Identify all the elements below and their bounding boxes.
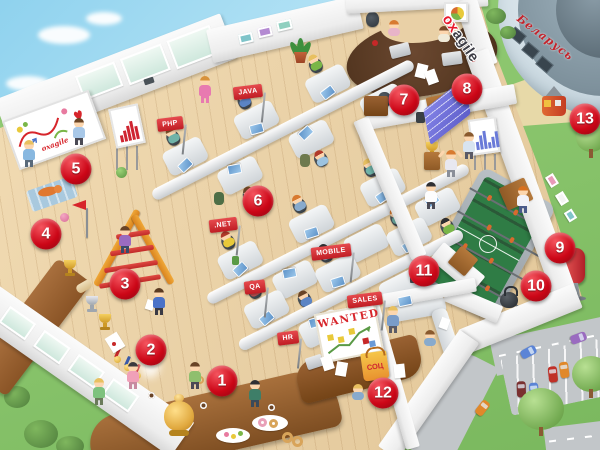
map-marker-10[interactable]: 10 [521, 271, 552, 302]
window [33, 330, 71, 365]
bush [500, 26, 516, 39]
tree-trunk [589, 389, 593, 398]
person [424, 182, 438, 209]
yarn-ball [116, 167, 127, 178]
certificate-seal [112, 342, 116, 346]
person [22, 140, 36, 167]
team-flag-dotnet: .NET [209, 219, 237, 232]
tea-cup [148, 392, 155, 399]
trophy-cup [86, 296, 98, 312]
candy [231, 434, 236, 439]
flipchart-legs [114, 146, 140, 170]
team-flag-mobile: MOBILE [311, 246, 351, 259]
team-flag-sales: SALES [347, 294, 382, 307]
cloud [38, 26, 90, 44]
team-flag-qa: QA [244, 281, 265, 294]
bush [24, 420, 58, 448]
flag-label: .NET [209, 217, 238, 233]
tree [518, 388, 564, 436]
picture-frame [555, 191, 569, 206]
pretzel [292, 436, 303, 447]
person [118, 226, 132, 253]
team-flag-hr: HR [278, 332, 299, 345]
samovar-base [169, 430, 189, 436]
picture-frame [257, 25, 273, 38]
tea-cup [268, 404, 275, 411]
car [559, 361, 570, 378]
tree-crown [572, 356, 600, 392]
trophy-cup [64, 260, 76, 276]
tea-cup [200, 402, 207, 409]
person [72, 118, 86, 145]
map-marker-6[interactable]: 6 [243, 186, 274, 217]
tree-crown [518, 388, 564, 430]
kiosk-sign [555, 100, 561, 106]
yarn-ball [60, 213, 69, 222]
samovar-body [164, 401, 194, 431]
team-flag-java: JAVA [233, 86, 262, 99]
backpack [300, 154, 310, 167]
cat [38, 185, 62, 197]
person [388, 20, 400, 36]
person [188, 362, 202, 389]
car [548, 366, 559, 383]
medal [114, 356, 121, 363]
flag-label: JAVA [233, 84, 264, 100]
samovar [162, 394, 196, 444]
person [424, 330, 436, 346]
flag-label: MOBILE [311, 243, 352, 261]
team-flag-php: PHP [157, 118, 183, 131]
person [386, 306, 400, 333]
flag-pole [86, 208, 88, 238]
kiosk-sign [544, 100, 551, 107]
picture-frame [276, 19, 293, 32]
office-chair [366, 12, 379, 27]
person [516, 186, 530, 213]
window [0, 306, 36, 341]
donut [258, 418, 267, 427]
person [126, 362, 140, 389]
resume [393, 363, 405, 378]
trophy-cup [99, 314, 111, 330]
kiosk [541, 86, 567, 118]
person [462, 132, 476, 159]
tree-trunk [539, 427, 543, 436]
cloud [86, 12, 122, 25]
bush [56, 436, 84, 450]
tree [572, 356, 600, 398]
small-plant [232, 256, 239, 265]
flag-label: SALES [347, 291, 384, 308]
candy [224, 432, 229, 437]
person [92, 378, 106, 405]
foosball-center-circle [476, 232, 500, 256]
map-marker-2[interactable]: 2 [136, 335, 167, 366]
map-marker-3[interactable]: 3 [110, 269, 141, 300]
map-marker-1[interactable]: 1 [207, 366, 238, 397]
person [248, 380, 262, 407]
picture-frame [238, 32, 254, 45]
apple [372, 40, 378, 46]
picture-frame [564, 208, 577, 222]
person [352, 384, 364, 400]
picture-frame [545, 173, 559, 188]
map-marker-13[interactable]: 13 [570, 104, 600, 135]
tree-trunk [589, 149, 593, 158]
bush [486, 8, 506, 24]
person [152, 288, 166, 315]
flag-label: HR [277, 330, 299, 345]
map-marker-11[interactable]: 11 [409, 256, 440, 287]
oxagile-office-map: Беларусь [0, 0, 600, 450]
map-marker-5[interactable]: 5 [61, 154, 92, 185]
person [198, 76, 212, 103]
cabinet [364, 96, 388, 116]
person [444, 150, 458, 177]
map-marker-12[interactable]: 12 [368, 378, 399, 409]
donut [269, 419, 278, 428]
candy [238, 431, 243, 436]
map-marker-9[interactable]: 9 [545, 233, 576, 264]
pennant-flag [72, 200, 86, 210]
map-marker-7[interactable]: 7 [389, 85, 420, 116]
bag-label: СОЦ [366, 360, 384, 371]
map-marker-4[interactable]: 4 [31, 219, 62, 250]
backpack [214, 192, 224, 205]
flag-label: PHP [157, 116, 184, 132]
map-marker-8[interactable]: 8 [452, 74, 483, 105]
flag-label: QA [244, 279, 267, 295]
